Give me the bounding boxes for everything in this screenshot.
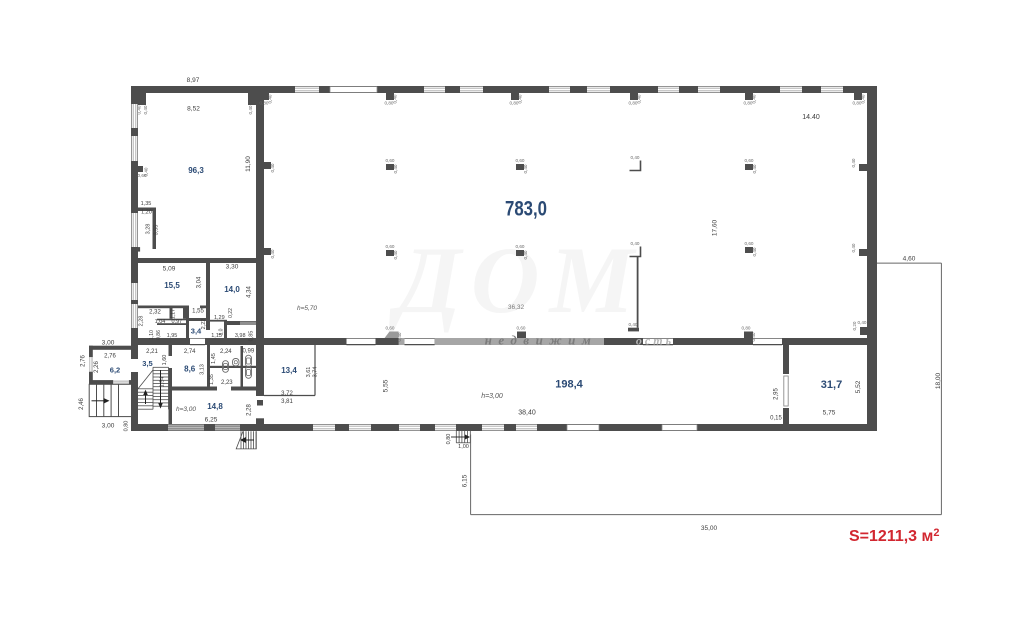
svg-text:6,25: 6,25 bbox=[205, 417, 218, 424]
svg-text:3,04: 3,04 bbox=[197, 276, 203, 288]
svg-text:0,60: 0,60 bbox=[745, 158, 754, 163]
svg-text:0,40: 0,40 bbox=[393, 164, 398, 173]
svg-text:0,40: 0,40 bbox=[397, 332, 402, 341]
svg-text:3,13: 3,13 bbox=[200, 364, 206, 375]
svg-text:2,28: 2,28 bbox=[247, 404, 253, 416]
svg-text:недвижим: недвижим bbox=[485, 333, 598, 348]
svg-text:14,0: 14,0 bbox=[224, 285, 240, 294]
svg-text:0,22: 0,22 bbox=[228, 308, 234, 318]
svg-text:0,20: 0,20 bbox=[852, 321, 857, 330]
svg-text:2,23: 2,23 bbox=[221, 380, 233, 386]
svg-text:0,15: 0,15 bbox=[770, 416, 782, 422]
svg-text:0,86: 0,86 bbox=[156, 330, 162, 340]
svg-text:0,60: 0,60 bbox=[386, 326, 395, 331]
svg-text:2,28: 2,28 bbox=[139, 316, 145, 327]
svg-text:3,00: 3,00 bbox=[102, 340, 115, 347]
svg-text:1,00: 1,00 bbox=[458, 444, 469, 450]
svg-text:0,40: 0,40 bbox=[861, 94, 866, 103]
svg-text:1,17: 1,17 bbox=[171, 309, 177, 319]
svg-text:0,40: 0,40 bbox=[851, 158, 856, 167]
svg-text:18,00: 18,00 bbox=[935, 372, 942, 389]
svg-text:3,55: 3,55 bbox=[154, 225, 160, 236]
svg-text:3,5: 3,5 bbox=[142, 359, 152, 368]
svg-text:0,80: 0,80 bbox=[124, 421, 130, 432]
svg-text:5,09: 5,09 bbox=[163, 266, 176, 273]
svg-text:31,7: 31,7 bbox=[821, 379, 842, 391]
svg-text:3,81: 3,81 bbox=[281, 399, 293, 405]
svg-text:0,40: 0,40 bbox=[631, 155, 640, 160]
svg-text:2,76: 2,76 bbox=[81, 355, 87, 367]
svg-text:0,40: 0,40 bbox=[270, 163, 275, 172]
svg-text:0,99: 0,99 bbox=[243, 349, 255, 355]
svg-text:2,21: 2,21 bbox=[146, 349, 158, 355]
svg-text:15,5: 15,5 bbox=[164, 281, 180, 290]
svg-text:2,22: 2,22 bbox=[201, 319, 207, 330]
svg-text:0,40: 0,40 bbox=[248, 105, 253, 114]
svg-text:0,40: 0,40 bbox=[523, 164, 528, 173]
svg-text:0,40: 0,40 bbox=[858, 320, 867, 325]
svg-text:11,90: 11,90 bbox=[245, 156, 252, 172]
svg-text:4,34: 4,34 bbox=[247, 286, 253, 298]
svg-text:8,52: 8,52 bbox=[187, 106, 200, 113]
svg-text:0,40: 0,40 bbox=[143, 105, 148, 114]
svg-text:0,80: 0,80 bbox=[446, 434, 452, 445]
svg-text:3,98: 3,98 bbox=[235, 333, 246, 339]
svg-text:ость: ость bbox=[636, 334, 674, 348]
svg-text:0,40: 0,40 bbox=[631, 241, 640, 246]
svg-text:2,76: 2,76 bbox=[104, 354, 116, 360]
svg-text:13,4: 13,4 bbox=[281, 366, 297, 375]
svg-text:1,04: 1,04 bbox=[155, 319, 166, 325]
svg-text:1,60: 1,60 bbox=[162, 355, 168, 366]
svg-text:1,54: 1,54 bbox=[159, 377, 165, 388]
svg-text:3,28: 3,28 bbox=[146, 224, 152, 235]
svg-text:5,52: 5,52 bbox=[855, 380, 862, 393]
svg-text:S=1211,3 м2: S=1211,3 м2 bbox=[849, 527, 939, 545]
svg-text:0,80: 0,80 bbox=[742, 326, 751, 331]
svg-text:1,10: 1,10 bbox=[149, 330, 155, 340]
svg-text:1,0: 1,0 bbox=[219, 328, 225, 335]
svg-text:8,6: 8,6 bbox=[184, 365, 196, 374]
svg-text:0,60: 0,60 bbox=[516, 244, 525, 249]
svg-text:0,40: 0,40 bbox=[851, 243, 856, 252]
svg-text:3,74: 3,74 bbox=[313, 367, 319, 378]
svg-text:0,40: 0,40 bbox=[393, 250, 398, 259]
svg-text:783,0: 783,0 bbox=[505, 198, 547, 221]
svg-text:4,60: 4,60 bbox=[903, 256, 916, 263]
svg-text:96,3: 96,3 bbox=[188, 166, 204, 175]
svg-text:0,40: 0,40 bbox=[751, 332, 756, 341]
svg-text:0,60: 0,60 bbox=[745, 241, 754, 246]
svg-text:ДОМ: ДОМ bbox=[388, 227, 644, 333]
svg-text:2,26: 2,26 bbox=[94, 361, 100, 373]
svg-text:0,40: 0,40 bbox=[268, 94, 273, 103]
svg-text:1,35: 1,35 bbox=[141, 201, 152, 207]
svg-text:1,20: 1,20 bbox=[141, 210, 152, 216]
svg-text:0,40: 0,40 bbox=[518, 94, 523, 103]
svg-text:2,32: 2,32 bbox=[149, 310, 161, 316]
svg-text:h=3,00: h=3,00 bbox=[481, 393, 503, 400]
svg-text:38,40: 38,40 bbox=[518, 410, 536, 417]
svg-text:2,24: 2,24 bbox=[220, 349, 232, 355]
svg-text:2,95: 2,95 bbox=[774, 388, 780, 400]
svg-text:0,97: 0,97 bbox=[172, 319, 183, 325]
svg-text:0,40: 0,40 bbox=[144, 167, 149, 176]
svg-text:0,60: 0,60 bbox=[386, 244, 395, 249]
svg-text:5,55: 5,55 bbox=[383, 379, 390, 392]
svg-text:17,60: 17,60 bbox=[712, 219, 719, 236]
svg-text:3,61: 3,61 bbox=[306, 367, 312, 378]
svg-text:0,40: 0,40 bbox=[637, 94, 642, 103]
svg-text:3,72: 3,72 bbox=[281, 391, 293, 397]
svg-text:0,40: 0,40 bbox=[752, 164, 757, 173]
svg-text:6,15: 6,15 bbox=[462, 474, 469, 487]
svg-text:0,40: 0,40 bbox=[393, 94, 398, 103]
svg-text:3,00: 3,00 bbox=[102, 423, 115, 430]
svg-text:1,29: 1,29 bbox=[214, 315, 225, 321]
svg-text:h=3,00: h=3,00 bbox=[176, 406, 196, 413]
svg-text:0,60: 0,60 bbox=[517, 326, 526, 331]
svg-text:5,75: 5,75 bbox=[823, 410, 836, 417]
svg-text:1,45: 1,45 bbox=[211, 353, 217, 364]
svg-text:198,4: 198,4 bbox=[555, 379, 583, 391]
svg-text:14.40: 14.40 bbox=[802, 114, 820, 121]
svg-text:0,60: 0,60 bbox=[386, 158, 395, 163]
svg-text:1,95: 1,95 bbox=[167, 333, 178, 339]
svg-text:0,40: 0,40 bbox=[523, 250, 528, 259]
svg-text:2,74: 2,74 bbox=[184, 349, 196, 355]
svg-text:0,40: 0,40 bbox=[752, 94, 757, 103]
svg-text:0,85: 0,85 bbox=[249, 331, 255, 342]
svg-text:h=5,70: h=5,70 bbox=[297, 305, 317, 312]
svg-text:0,40: 0,40 bbox=[270, 249, 275, 258]
svg-text:35,00: 35,00 bbox=[701, 525, 718, 532]
svg-text:1,55: 1,55 bbox=[192, 309, 204, 315]
svg-text:0,40: 0,40 bbox=[752, 247, 757, 256]
svg-text:2,46: 2,46 bbox=[79, 398, 85, 410]
svg-text:6,2: 6,2 bbox=[110, 366, 120, 375]
svg-text:0,60: 0,60 bbox=[516, 158, 525, 163]
svg-text:0,40: 0,40 bbox=[137, 105, 142, 114]
svg-text:8,97: 8,97 bbox=[187, 77, 200, 84]
svg-text:3,30: 3,30 bbox=[226, 264, 239, 271]
svg-text:1,35: 1,35 bbox=[209, 374, 215, 385]
svg-text:0,40: 0,40 bbox=[629, 322, 638, 327]
svg-text:14,8: 14,8 bbox=[207, 402, 223, 411]
svg-text:36,32: 36,32 bbox=[508, 304, 525, 311]
